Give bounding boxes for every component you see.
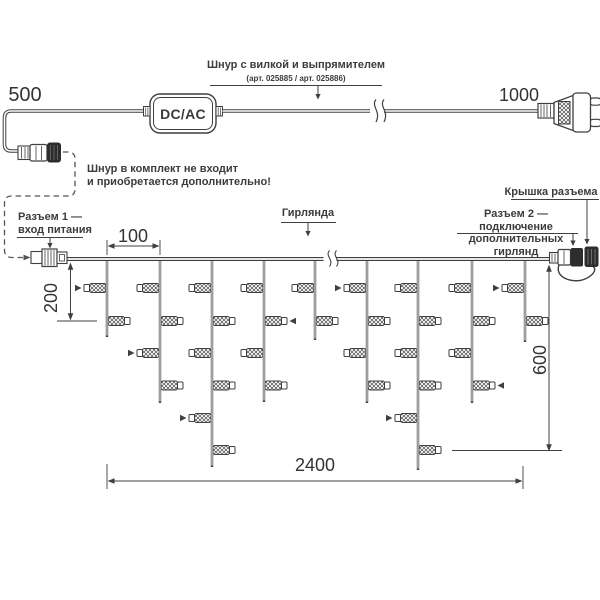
lamp-icon bbox=[108, 317, 125, 326]
lamp-cap bbox=[282, 382, 288, 389]
lamp-cap bbox=[490, 382, 496, 389]
lamp-icon bbox=[247, 349, 264, 358]
lamp-cap bbox=[344, 285, 350, 292]
connector1-line1: Разъем 1 — bbox=[18, 211, 82, 223]
lamp-cap bbox=[543, 318, 549, 325]
lamp-icon bbox=[401, 414, 418, 423]
cord-subtitle: (арт. 025885 / арт. 025886) bbox=[200, 73, 392, 86]
connector2-line1: Разъем 2 — подключение bbox=[479, 208, 553, 233]
connector1-icon bbox=[31, 249, 67, 267]
lamp-icon bbox=[195, 284, 212, 293]
note-line1: Шнур в комплект не входит bbox=[87, 163, 238, 175]
dashed-connection-path bbox=[5, 152, 76, 260]
connector1-label: Разъем 1 — вход питания bbox=[18, 211, 92, 236]
lamp-cap bbox=[189, 285, 195, 292]
lamp-cap bbox=[230, 382, 236, 389]
lamp-icon bbox=[473, 317, 490, 326]
connector-cap-icon bbox=[585, 247, 599, 268]
lamp-icon bbox=[298, 284, 315, 293]
cap-label: Крышка разъема bbox=[503, 186, 599, 199]
lamp-icon bbox=[213, 446, 230, 455]
lamp-cap bbox=[344, 350, 350, 357]
lamp-icon bbox=[143, 349, 160, 358]
dim-500-label: 500 bbox=[2, 84, 48, 107]
lamp-pointer-arrow bbox=[75, 285, 82, 291]
connector2-line2: дополнительных гирлянд bbox=[469, 233, 564, 258]
lamp-cap bbox=[449, 285, 455, 292]
lamp-icon bbox=[195, 414, 212, 423]
lamp-cap bbox=[241, 285, 247, 292]
lamp-cap bbox=[84, 285, 90, 292]
lamp-cap bbox=[292, 285, 298, 292]
lamp-cap bbox=[282, 318, 288, 325]
lamp-cap bbox=[137, 285, 143, 292]
dim-100-label: 100 bbox=[113, 226, 153, 247]
lamp-icon bbox=[143, 284, 160, 293]
lamp-cap bbox=[490, 318, 496, 325]
lamp-icon bbox=[473, 381, 490, 390]
lamp-cap bbox=[436, 447, 442, 454]
lamp-cap bbox=[178, 382, 184, 389]
lamp-icon bbox=[368, 317, 385, 326]
note-line2: и приобретается дополнительно! bbox=[87, 176, 271, 188]
lamp-cap bbox=[241, 350, 247, 357]
lamp-pointer-arrow bbox=[128, 350, 135, 356]
lamp-icon bbox=[350, 349, 367, 358]
lamp-cap bbox=[449, 350, 455, 357]
lamp-cap bbox=[385, 318, 391, 325]
lamp-icon bbox=[265, 317, 282, 326]
lamp-icon bbox=[455, 284, 472, 293]
lamp-icon bbox=[350, 284, 367, 293]
dim-2400-label: 2400 bbox=[287, 455, 343, 476]
lamp-icon bbox=[213, 317, 230, 326]
lamp-icon bbox=[368, 381, 385, 390]
garland-diagram: 500 1000 Шнур с вилкой и выпрямителем (а… bbox=[0, 0, 600, 600]
lamp-cap bbox=[125, 318, 131, 325]
dashed-arrowhead bbox=[24, 255, 31, 261]
lamp-icon bbox=[247, 284, 264, 293]
lamp-icon bbox=[508, 284, 525, 293]
lamp-cap bbox=[189, 350, 195, 357]
power-cord-right bbox=[223, 100, 540, 123]
connector2-label: Разъем 2 — подключение дополнительных ги… bbox=[448, 208, 584, 258]
cord-label: Шнур с вилкой и выпрямителем (арт. 02588… bbox=[200, 59, 392, 85]
note-not-included: Шнур в комплект не входит и приобретаетс… bbox=[87, 163, 271, 188]
adapter-label: DC/AC bbox=[150, 94, 216, 133]
lamp-cap bbox=[436, 382, 442, 389]
lamp-icon bbox=[90, 284, 107, 293]
lamp-cap bbox=[502, 285, 508, 292]
lamp-pointer-arrow bbox=[290, 318, 297, 324]
lamp-icon bbox=[455, 349, 472, 358]
lamp-icon bbox=[526, 317, 543, 326]
lamp-icon bbox=[419, 317, 436, 326]
lamp-cap bbox=[385, 382, 391, 389]
lamp-pointer-arrow bbox=[335, 285, 342, 291]
lamp-cap bbox=[178, 318, 184, 325]
lamp-icon bbox=[419, 381, 436, 390]
lamp-icon bbox=[316, 317, 333, 326]
lamp-icon bbox=[419, 446, 436, 455]
lamp-icon bbox=[161, 317, 178, 326]
euro-plug-icon bbox=[538, 93, 600, 132]
lamp-icon bbox=[265, 381, 282, 390]
lamp-pointer-arrow bbox=[498, 382, 505, 388]
lamp-icon bbox=[401, 349, 418, 358]
lamp-pointer-arrow bbox=[386, 415, 393, 421]
cord-connector-icon bbox=[18, 143, 61, 163]
lamp-cap bbox=[395, 285, 401, 292]
connector1-line2: вход питания bbox=[18, 224, 92, 236]
lamp-cap bbox=[230, 318, 236, 325]
lamp-icon bbox=[161, 381, 178, 390]
lamp-cap bbox=[230, 447, 236, 454]
lamp-cap bbox=[137, 350, 143, 357]
lamp-icon bbox=[195, 349, 212, 358]
lamp-cap bbox=[333, 318, 339, 325]
lamp-cap bbox=[395, 415, 401, 422]
dim-1000-label: 1000 bbox=[494, 85, 544, 106]
lamp-cap bbox=[189, 415, 195, 422]
cap-strap bbox=[558, 265, 595, 281]
lamp-icon bbox=[401, 284, 418, 293]
lamp-icon bbox=[213, 381, 230, 390]
dim-200-label: 200 bbox=[40, 276, 62, 320]
garland-drops bbox=[75, 259, 548, 470]
power-cord-left bbox=[5, 111, 145, 151]
dim-600-label: 600 bbox=[529, 338, 551, 382]
cord-title: Шнур с вилкой и выпрямителем bbox=[207, 59, 385, 71]
garland-label: Гирлянда bbox=[258, 207, 358, 220]
lamp-pointer-arrow bbox=[493, 285, 500, 291]
lamp-cap bbox=[436, 318, 442, 325]
lamp-pointer-arrow bbox=[180, 415, 187, 421]
lamp-cap bbox=[395, 350, 401, 357]
